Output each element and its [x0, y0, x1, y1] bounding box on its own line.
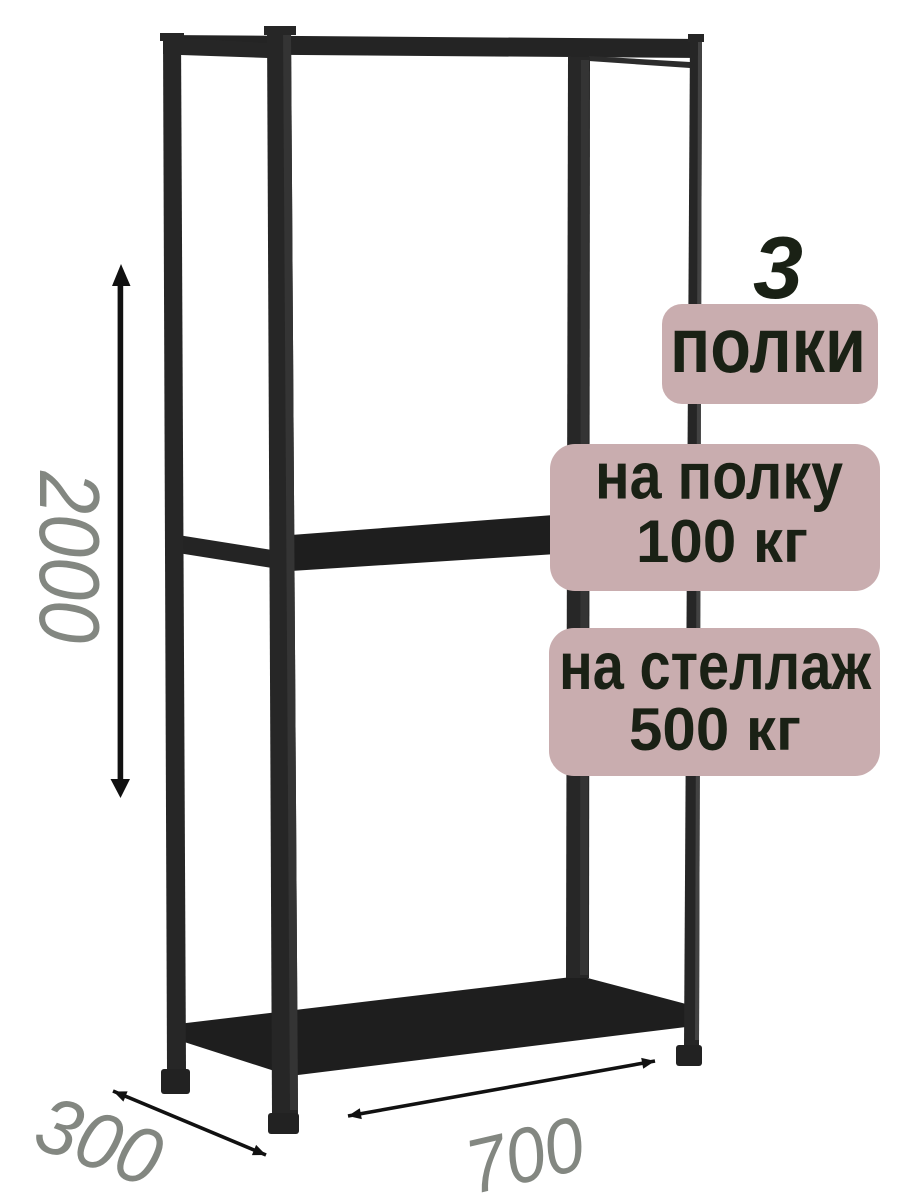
svg-text:полки: полки: [670, 301, 866, 389]
svg-text:100 кг: 100 кг: [636, 508, 808, 575]
svg-text:на полку: на полку: [595, 439, 843, 513]
svg-text:500 кг: 500 кг: [629, 696, 801, 763]
svg-text:на стеллаж: на стеллаж: [559, 629, 872, 704]
svg-text:2000: 2000: [21, 470, 116, 643]
